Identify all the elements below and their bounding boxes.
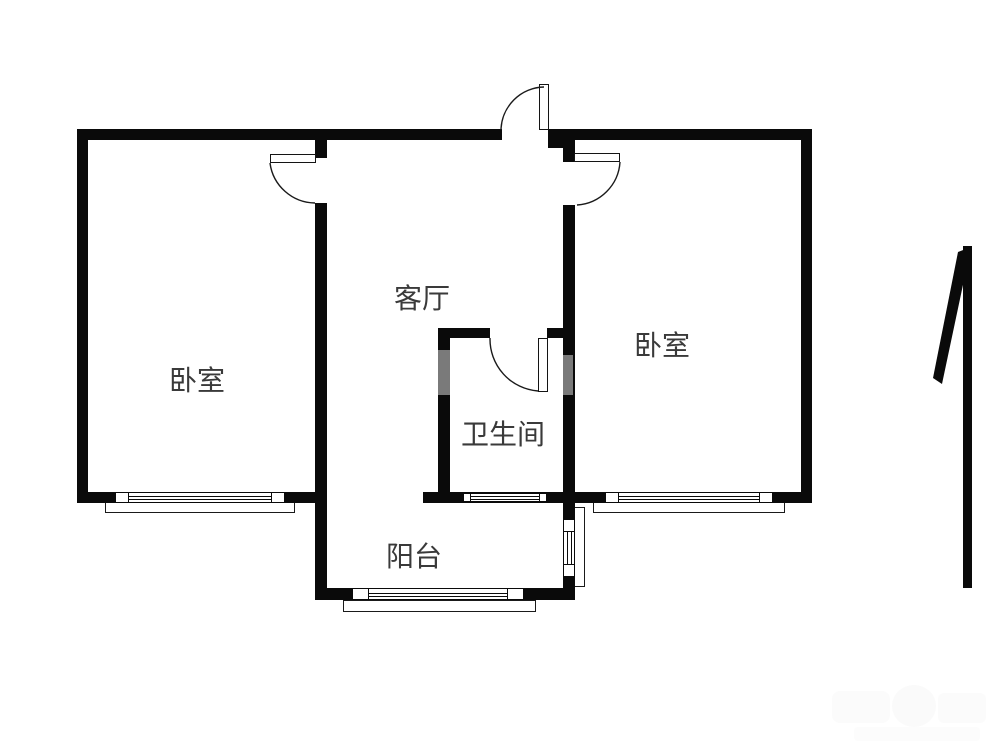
arc-bedroom-left-door (270, 163, 315, 203)
arc-bathroom-door (490, 338, 538, 391)
door-arcs-and-compass (0, 0, 1000, 751)
arc-entrance-door (501, 87, 544, 130)
room-label-bathroom: 卫生间 (461, 420, 545, 449)
room-label-living-room: 客厅 (394, 284, 450, 313)
room-label-balcony: 阳台 (386, 542, 442, 571)
room-label-bedroom-left: 卧室 (169, 366, 225, 395)
arc-bedroom-right-door (577, 162, 620, 205)
north-arrow-icon (933, 246, 972, 588)
floor-plan: 卧室 客厅 卧室 卫生间 阳台 (0, 0, 1000, 751)
room-label-bedroom-right: 卧室 (634, 331, 690, 360)
